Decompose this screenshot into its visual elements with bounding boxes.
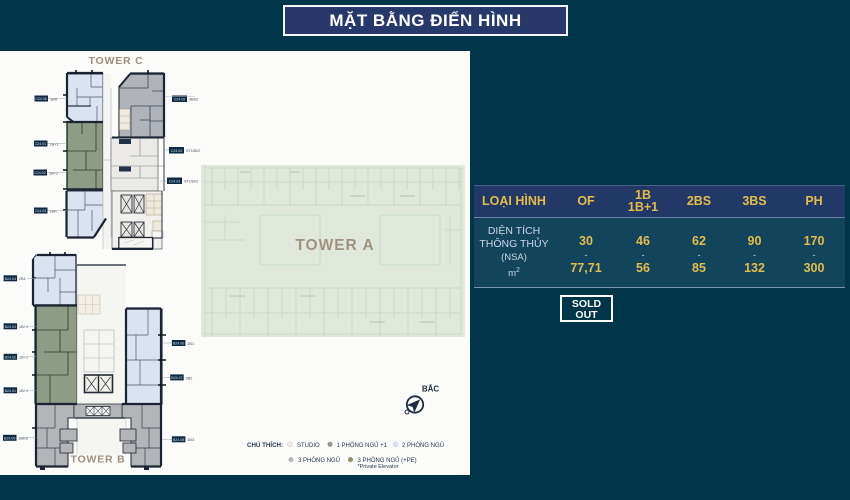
svg-text:3BS2: 3BS2	[189, 98, 198, 102]
svg-text:1 PHÒNG NGỦ +1: 1 PHÒNG NGỦ +1	[337, 442, 388, 449]
svg-text:1BR: 1BR	[50, 97, 58, 101]
svg-text:1B+1: 1B+1	[50, 142, 59, 146]
svg-text:2B1: 2B1	[187, 342, 194, 346]
svg-text:B24.06: B24.06	[173, 342, 184, 346]
svg-text:STUDIO: STUDIO	[186, 149, 200, 153]
svg-text:B24.04: B24.04	[5, 277, 16, 281]
svg-text:1B+1: 1B+1	[49, 171, 58, 175]
svg-text:C24.06: C24.06	[35, 97, 47, 101]
svg-text:1B+1: 1B+1	[19, 389, 28, 393]
svg-text:3 PHÒNG NGỦ: 3 PHÒNG NGỦ	[298, 457, 340, 464]
svg-text:TOWER A: TOWER A	[295, 237, 374, 254]
svg-text:2 PHÒNG NGỦ: 2 PHÒNG NGỦ	[402, 442, 444, 449]
svg-text:BẮC: BẮC	[422, 385, 440, 394]
svg-text:3B3: 3B3	[187, 438, 194, 442]
svg-text:C24.05: C24.05	[174, 97, 186, 101]
svg-text:B24.02: B24.02	[5, 356, 16, 360]
svg-text:C24.04: C24.04	[171, 149, 183, 153]
svg-text:*Private Elevator: *Private Elevator	[358, 464, 399, 470]
svg-text:3BR3: 3BR3	[18, 437, 28, 441]
svg-text:1BR: 1BR	[50, 209, 58, 213]
svg-text:STUDIO: STUDIO	[297, 443, 320, 449]
svg-text:TOWER B: TOWER B	[71, 454, 126, 466]
svg-text:TOWER C: TOWER C	[89, 55, 144, 67]
svg-text:B24.01: B24.01	[5, 389, 16, 393]
svg-text:1B+1: 1B+1	[19, 325, 28, 329]
svg-text:1B+1: 1B+1	[19, 356, 28, 360]
svg-text:C24.03: C24.03	[35, 209, 47, 213]
svg-text:CHÚ THÍCH:: CHÚ THÍCH:	[247, 441, 283, 449]
svg-text:C24.03: C24.03	[169, 179, 181, 183]
svg-text:B24.03: B24.03	[5, 325, 16, 329]
svg-text:2B1: 2B1	[19, 277, 26, 281]
svg-text:STUDIO: STUDIO	[184, 180, 198, 184]
svg-text:2B2: 2B2	[186, 376, 193, 380]
svg-text:C24.01: C24.01	[35, 142, 47, 146]
svg-text:B24.07: B24.07	[171, 376, 182, 380]
svg-text:B24.08: B24.08	[173, 438, 184, 442]
svg-text:B24.09: B24.09	[4, 437, 15, 441]
svg-text:C24.02: C24.02	[34, 171, 46, 175]
